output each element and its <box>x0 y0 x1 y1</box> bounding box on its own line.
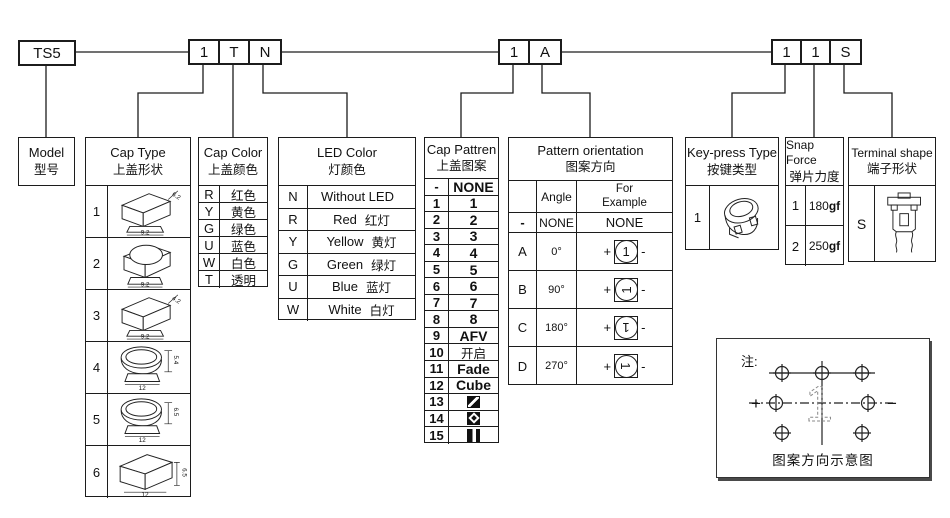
vertical-bar-square-icon <box>467 429 480 442</box>
pattern-orientation-subheader: Angle For Example <box>509 181 672 213</box>
cap-pattern-code: 2 <box>425 212 449 228</box>
cap-color-label: 红色 <box>220 186 267 202</box>
cap-pattern-title-zh: 上盖图案 <box>436 158 486 175</box>
cap-type-table: Cap Type 上盖形状 1 9.2 6.2 2 <box>85 137 191 497</box>
code-key-press: 1 <box>773 41 802 63</box>
led-color-title-en: LED Color <box>317 144 377 162</box>
cap-pattern-label: 1 <box>449 196 498 212</box>
cap-type-header: Cap Type 上盖形状 <box>86 138 190 186</box>
snap-force-value: 250 <box>809 239 829 253</box>
cap-pattern-row: 15 <box>425 427 498 444</box>
orientation-angle: NONE <box>537 213 577 232</box>
cap-type-row: 2 9.2 <box>86 238 190 290</box>
cap-color-row: T 透明 <box>199 271 267 288</box>
model-table: Model 型号 <box>18 137 75 186</box>
svg-text:9.2: 9.2 <box>141 229 150 236</box>
orientation-angle: 180° <box>537 309 577 346</box>
cap-pattern-code: 3 <box>425 229 449 245</box>
led-color-label-zh: 绿灯 <box>371 255 396 274</box>
led-color-code: R <box>279 209 308 231</box>
orientation-code: A <box>509 233 537 270</box>
plus-sign: + <box>604 359 612 374</box>
led-color-label-en: Red <box>333 212 357 227</box>
snap-force-header: Snap Force 弹片力度 <box>786 138 843 186</box>
orientation-example: + 1 - <box>577 271 672 308</box>
dome-cap-icon: 12 6.5 <box>108 395 190 445</box>
orientation-example: NONE <box>577 213 672 232</box>
key-press-table: Key-press Type 按键类型 1 <box>685 137 779 250</box>
terminal-shape-row: S <box>849 186 935 261</box>
code-snap-force: 1 <box>802 41 831 63</box>
snap-force-unit: gf <box>829 239 840 253</box>
cap-type-row: 3 9.2 4.2 <box>86 290 190 342</box>
cap-color-title-en: Cap Color <box>204 144 263 162</box>
svg-text:5.4: 5.4 <box>172 355 179 364</box>
led-color-label-zh: 红灯 <box>365 210 390 229</box>
led-color-code: G <box>279 254 308 276</box>
led-color-table: LED Color 灯颜色 N Without LED R Red红灯 Y Ye… <box>278 137 416 320</box>
code-cap-type: 1 <box>190 41 220 63</box>
cap-pattern-code: 11 <box>425 361 449 377</box>
pattern-orientation-title-en: Pattern orientation <box>537 142 643 160</box>
cap-pattern-label: 5 <box>449 262 498 278</box>
cap-pattern-label: 8 <box>449 311 498 327</box>
pattern-orientation-table: Pattern orientation 图案方向 Angle For Examp… <box>508 137 673 385</box>
led-color-code: W <box>279 299 308 322</box>
cap-pattern-code: 6 <box>425 278 449 294</box>
snap-force-code: 2 <box>786 226 806 266</box>
cap-color-code: T <box>199 271 220 288</box>
cap-color-title-zh: 上盖颜色 <box>208 162 258 179</box>
cap-pattern-row: 2 2 <box>425 212 498 229</box>
cap-pattern-row: 6 6 <box>425 278 498 295</box>
cap-pattern-code: 12 <box>425 378 449 394</box>
led-color-row: Y Yellow黄灯 <box>279 231 415 254</box>
snap-force-title-en: Snap Force <box>786 138 843 169</box>
led-color-title-zh: 灯颜色 <box>328 162 366 179</box>
cap-pattern-code: 8 <box>425 311 449 327</box>
cap-pattern-code: 1 <box>425 196 449 212</box>
led-color-label-en: White <box>328 302 361 317</box>
cap-color-label: 黄色 <box>220 203 267 219</box>
orientation-angle: 0° <box>537 233 577 270</box>
led-color-row: R Red红灯 <box>279 209 415 232</box>
cap-pattern-header: Cap Pattren 上盖图案 <box>425 138 498 179</box>
orientation-glyph-icon: 1 <box>614 240 638 264</box>
key-press-code: 1 <box>686 186 710 249</box>
cap-type-title-zh: 上盖形状 <box>113 162 163 179</box>
cap-type-code: 6 <box>86 446 108 498</box>
note-plus-sign: + <box>751 394 761 413</box>
cap-drawing-4: 12 5.4 <box>108 342 190 393</box>
cap-pattern-row: 11 Fade <box>425 361 498 378</box>
orientation-example: + 1 - <box>577 233 672 270</box>
key-press-header: Key-press Type 按键类型 <box>686 138 778 186</box>
orientation-code: D <box>509 347 537 385</box>
cap-type-code: 2 <box>86 238 108 289</box>
cap-pattern-code: 5 <box>425 262 449 278</box>
svg-text:6.5: 6.5 <box>181 468 188 477</box>
svg-text:9.2: 9.2 <box>141 333 150 340</box>
pattern-orientation-row: A 0° + 1 - <box>509 233 672 271</box>
plus-sign: + <box>604 282 612 297</box>
cap-color-row: Y 黄色 <box>199 203 267 220</box>
orientation-example: + 1 - <box>577 309 672 346</box>
cap-pattern-row: 10 开启 <box>425 344 498 361</box>
model-code: TS5 <box>20 42 74 64</box>
cap-pattern-row: 14 <box>425 411 498 428</box>
led-color-label-zh: 白灯 <box>370 300 395 319</box>
code-terminal: S <box>831 41 860 63</box>
minus-sign: - <box>641 359 645 374</box>
cap-pattern-label: 2 <box>449 212 498 228</box>
orientation-code: - <box>509 213 537 232</box>
cap-pattern-code: 9 <box>425 328 449 344</box>
led-color-label-en: Blue <box>332 279 358 294</box>
led-color-row: N Without LED <box>279 186 415 209</box>
code-led-color: N <box>250 41 280 63</box>
cap-color-row: G 绿色 <box>199 220 267 237</box>
cap-color-code: W <box>199 254 220 270</box>
cap-color-label: 绿色 <box>220 220 267 236</box>
cap-color-code: U <box>199 237 220 253</box>
cap-pattern-table: Cap Pattren 上盖图案 - NONE 1 1 2 2 3 3 4 4 … <box>424 137 499 443</box>
cap-color-label: 蓝色 <box>220 237 267 253</box>
cap-pattern-code: - <box>425 179 449 195</box>
cap-type-title-en: Cap Type <box>110 144 165 162</box>
cap-pattern-label: NONE <box>449 179 498 195</box>
snap-force-title-zh: 弹片力度 <box>789 169 839 185</box>
cap-type-code: 5 <box>86 394 108 445</box>
led-color-label-en: Without LED <box>321 189 394 204</box>
orientation-glyph-icon: 1 <box>614 354 638 378</box>
cap-drawing-1: 9.2 6.2 <box>108 186 190 237</box>
cap-color-label: 白色 <box>220 254 267 270</box>
cap-pattern-row: 8 8 <box>425 311 498 328</box>
cap-type-row: 5 12 6.5 <box>86 394 190 446</box>
cap-pattern-code: 13 <box>425 394 449 410</box>
orientation-code: C <box>509 309 537 346</box>
model-label-en: Model <box>29 144 64 162</box>
cap-pattern-label: 6 <box>449 278 498 294</box>
pattern-orientation-row: D 270° + 1 - <box>509 347 672 385</box>
terminal-shape-table: Terminal shape 端子形状 S <box>848 137 936 262</box>
terminal-shape-drawing <box>875 186 935 261</box>
pattern-orientation-title-zh: 图案方向 <box>565 159 615 176</box>
cap-pattern-label: 3 <box>449 229 498 245</box>
cap-color-table: Cap Color 上盖颜色 R 红色 Y 黄色 G 绿色 U 蓝色 W 白色 … <box>198 137 268 287</box>
cap-type-code: 3 <box>86 290 108 341</box>
cap-pattern-label: AFV <box>449 328 498 344</box>
cap-type-code: 1 <box>86 186 108 237</box>
round-top-cap-icon: 9.2 <box>108 239 190 289</box>
cap-color-row: W 白色 <box>199 254 267 271</box>
square-cap-icon: 9.2 4.2 <box>108 291 190 341</box>
cap-color-code: R <box>199 186 220 202</box>
svg-text:12: 12 <box>142 492 149 497</box>
diagonal-split-square-icon <box>467 396 480 408</box>
cap-color-code: Y <box>199 203 220 219</box>
led-color-label-en: Green <box>327 257 363 272</box>
cap-type-row: 1 9.2 6.2 <box>86 186 190 238</box>
cap-pattern-code: 10 <box>425 344 449 360</box>
svg-text:9.2: 9.2 <box>141 281 150 288</box>
cap-drawing-6: 12 6.5 <box>108 446 190 498</box>
note-minus-sign: − <box>887 394 897 413</box>
pattern-orientation-row: - NONE NONE <box>509 213 672 233</box>
cap-pattern-label: 7 <box>449 295 498 311</box>
svg-text:6.5: 6.5 <box>172 407 179 416</box>
orientation-angle: 90° <box>537 271 577 308</box>
model-code-box: TS5 <box>18 40 76 66</box>
led-color-label-zh: 蓝灯 <box>366 277 391 296</box>
cap-pattern-code: 15 <box>425 427 449 444</box>
led-color-code: N <box>279 186 308 208</box>
cap-type-code: 4 <box>86 342 108 393</box>
cap-drawing-2: 9.2 <box>108 238 190 289</box>
cap-color-row: U 蓝色 <box>199 237 267 254</box>
minus-sign: - <box>641 282 645 297</box>
dome-cap-icon: 12 5.4 <box>108 343 190 393</box>
orientation-example: + 1 - <box>577 347 672 385</box>
model-label-zh: 型号 <box>34 162 59 179</box>
cap-pattern-code: 14 <box>425 411 449 427</box>
cap-color-code: G <box>199 220 220 236</box>
led-color-code: Y <box>279 231 308 253</box>
cap-pattern-row: 12 Cube <box>425 378 498 395</box>
cap-drawing-5: 12 6.5 <box>108 394 190 445</box>
snap-force-row: 2 250gf <box>786 226 843 266</box>
cap-pattern-row: - NONE <box>425 179 498 196</box>
cap-pattern-row: 5 5 <box>425 262 498 279</box>
key-press-title-zh: 按键类型 <box>707 162 757 179</box>
cap-type-row: 4 12 5.4 <box>86 342 190 394</box>
note-box: 注: 1 + − 图案方向示意图 <box>716 338 930 478</box>
snap-force-value: 180 <box>809 199 829 213</box>
cap-pattern-label: 4 <box>449 245 498 261</box>
example-column-header: For Example <box>599 183 651 209</box>
diamond-in-square-icon <box>467 412 480 425</box>
cap-pattern-code: 7 <box>425 295 449 311</box>
pattern-orientation-header: Pattern orientation 图案方向 <box>509 138 672 181</box>
snap-force-code: 1 <box>786 186 806 225</box>
cap-drawing-3: 9.2 4.2 <box>108 290 190 341</box>
snap-force-unit: gf <box>829 199 840 213</box>
cap-pattern-label: 开启 <box>449 344 498 360</box>
terminal-shape-title-en: Terminal shape <box>851 146 932 162</box>
cap-pattern-row: 7 7 <box>425 295 498 312</box>
key-press-title-en: Key-press Type <box>687 144 777 162</box>
cap-pattern-label: Fade <box>449 361 498 377</box>
led-color-code: U <box>279 276 308 298</box>
ghost-digit: 1 <box>805 376 833 432</box>
plus-sign: + <box>604 244 612 259</box>
led-color-label-zh: 黄灯 <box>372 232 397 251</box>
code-group-1: 1 T N <box>188 39 282 65</box>
orientation-glyph-icon: 1 <box>614 316 638 340</box>
led-color-row: W White白灯 <box>279 299 415 322</box>
terminal-shape-title-zh: 端子形状 <box>867 161 917 177</box>
cap-pattern-label: Cube <box>449 378 498 394</box>
cap-pattern-row: 1 1 <box>425 196 498 213</box>
snap-force-table: Snap Force 弹片力度 1 180gf 2 250gf <box>785 137 844 265</box>
terminal-shape-code: S <box>849 186 875 261</box>
cap-pattern-title-en: Cap Pattren <box>427 141 496 159</box>
orientation-code: B <box>509 271 537 308</box>
cap-color-header: Cap Color 上盖颜色 <box>199 138 267 186</box>
cap-color-row: R 红色 <box>199 186 267 203</box>
cap-type-row: 6 12 6.5 <box>86 446 190 498</box>
tact-switch-isometric-icon <box>716 190 772 246</box>
code-cap-color: T <box>220 41 250 63</box>
code-pattern-orientation: A <box>530 41 560 63</box>
key-press-drawing <box>710 186 778 249</box>
code-cap-pattern: 1 <box>500 41 530 63</box>
angle-column-header: Angle <box>537 181 577 212</box>
code-group-2: 1 A <box>498 39 562 65</box>
led-color-header: LED Color 灯颜色 <box>279 138 415 186</box>
led-color-label-en: Yellow <box>326 234 363 249</box>
pattern-orientation-row: B 90° + 1 - <box>509 271 672 309</box>
key-press-row: 1 <box>686 186 778 249</box>
svg-text:12: 12 <box>139 437 146 444</box>
terminal-shape-header: Terminal shape 端子形状 <box>849 138 935 186</box>
through-hole-switch-icon <box>880 190 930 258</box>
note-caption: 图案方向示意图 <box>717 449 929 469</box>
led-color-row: U Blue蓝灯 <box>279 276 415 299</box>
svg-text:12: 12 <box>139 385 146 392</box>
cap-pattern-row: 13 <box>425 394 498 411</box>
cap-pattern-code: 4 <box>425 245 449 261</box>
code-group-3: 1 1 S <box>771 39 862 65</box>
pattern-orientation-row: C 180° + 1 - <box>509 309 672 347</box>
plus-sign: + <box>604 320 612 335</box>
led-color-row: G Green绿灯 <box>279 254 415 277</box>
box-cap-icon: 12 6.5 <box>108 447 190 497</box>
orientation-diagram: 1 + − <box>743 357 905 449</box>
cap-color-label: 透明 <box>220 271 267 288</box>
minus-sign: - <box>641 244 645 259</box>
snap-force-row: 1 180gf <box>786 186 843 226</box>
square-cap-icon: 9.2 6.2 <box>108 187 190 237</box>
orientation-angle: 270° <box>537 347 577 385</box>
orientation-glyph-icon: 1 <box>614 278 638 302</box>
cap-pattern-row: 3 3 <box>425 229 498 246</box>
minus-sign: - <box>641 320 645 335</box>
cap-pattern-row: 4 4 <box>425 245 498 262</box>
